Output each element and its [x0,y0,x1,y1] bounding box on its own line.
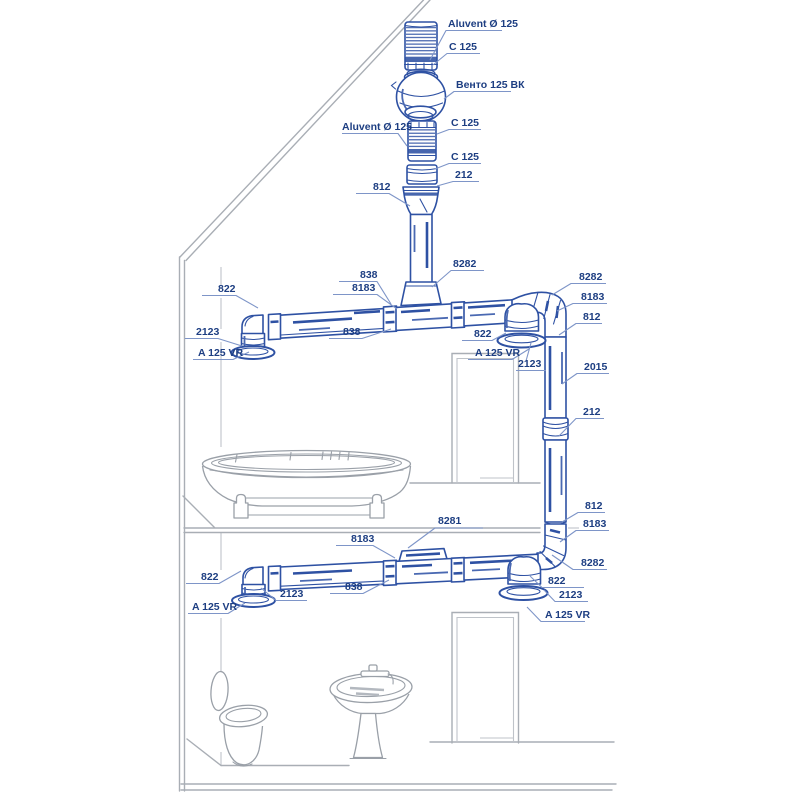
n8282-top-leader-line [432,271,484,288]
n2123-lowleft-label: 2123 [280,588,304,600]
aluvent-top-label: Aluvent Ø 125 [448,18,518,30]
flexible-duct-upper [405,22,438,70]
right-riser-duct [537,337,568,570]
bathtub-foot-left [234,495,248,519]
door-upper [452,354,519,484]
n822-lowleft-label: 822 [201,571,219,583]
aluvent-left-leader-line [342,134,407,147]
roof-cowl [392,69,446,122]
n2123-lowright-label: 2123 [559,589,583,601]
n812-top-label: 812 [373,181,391,193]
left-wall [180,257,185,791]
c125-1-leader-line [433,54,480,66]
n2123-topleft-leader-line [185,339,242,347]
n212-right-label: 212 [583,406,601,418]
a125vr-lowleft-label: A 125 VR [192,601,238,613]
n8183-low-leader-line [336,546,395,559]
n2123-topmid-label: 2123 [518,358,542,370]
n2015-label: 2015 [584,361,608,373]
n822-topmid-label: 822 [474,328,492,340]
n838-low-label: 838 [345,581,363,593]
n8183-low-label: 8183 [351,533,375,545]
vento-leader-line [444,92,511,100]
a125vr-topmid-label: A 125 VR [475,347,521,359]
n8183-top-label: 8183 [352,282,376,294]
sink-pedestal [354,714,383,758]
n2123-topleft-label: 2123 [196,326,220,338]
n8281-leader-line [408,528,483,548]
lower-run-clamp-3 [452,558,465,582]
n8183-topright-label: 8183 [581,291,605,303]
c125-3-label: C 125 [451,151,479,163]
riser-segment-lower [545,440,566,522]
n8282-top-label: 8282 [453,258,477,270]
aluvent-left-label: Aluvent Ø 125 [342,121,412,133]
flexible-duct-lower [408,121,436,161]
n8282-right2-label: 8282 [581,557,605,569]
duct-812-vertical [403,187,439,285]
coupling-212-top [407,165,437,184]
n822-topleft-label: 822 [218,283,236,295]
tee-piece-8281 [396,559,452,584]
n822-topleft-leader-line [202,296,258,309]
riser-coupling-212 [543,418,568,440]
door-lower [452,613,519,744]
a125vr-lowright-label: A 125 VR [545,609,591,621]
lower-run-clamp-1 [269,566,281,591]
n838-top2-label: 838 [343,326,361,338]
upper-run-clamp-3 [452,302,465,328]
n812-topright-label: 812 [583,311,601,323]
n212-top-leader-line [437,182,479,187]
n8281-label: 8281 [438,515,462,527]
c125-1-label: C 125 [449,41,477,53]
n812-right2-label: 812 [585,500,603,512]
sink [330,665,413,759]
bathtub-foot-right [370,495,384,519]
n8183-right2-leader-line [560,531,609,543]
ventilation-diagram-page: Aluvent Ø 125C 125Венто 125 ВКC 125Aluve… [0,0,800,800]
c125-2-leader-line [437,130,481,135]
ventilation-system [232,22,569,607]
diagram-canvas: Aluvent Ø 125C 125Венто 125 ВКC 125Aluve… [0,0,800,800]
vento-label: Венто 125 ВК [456,79,525,91]
upper-run-clamp-2 [384,306,397,332]
upper-run-clamp-1 [269,314,281,340]
n2015-leader-line [562,374,609,385]
toilet [210,671,269,766]
cowl-bracket [392,82,397,89]
n212-top-label: 212 [455,169,473,181]
n8282-topright-label: 8282 [579,271,603,283]
n812-top-leader-line [356,194,410,207]
bathtub [203,451,411,519]
a125vr-topleft-label: A 125 VR [198,347,244,359]
n838-top1-label: 838 [360,269,378,281]
tee-piece-top [396,304,452,331]
n8183-right2-label: 8183 [583,518,607,530]
n822-lowright-label: 822 [548,575,566,587]
c125-2-label: C 125 [451,117,479,129]
